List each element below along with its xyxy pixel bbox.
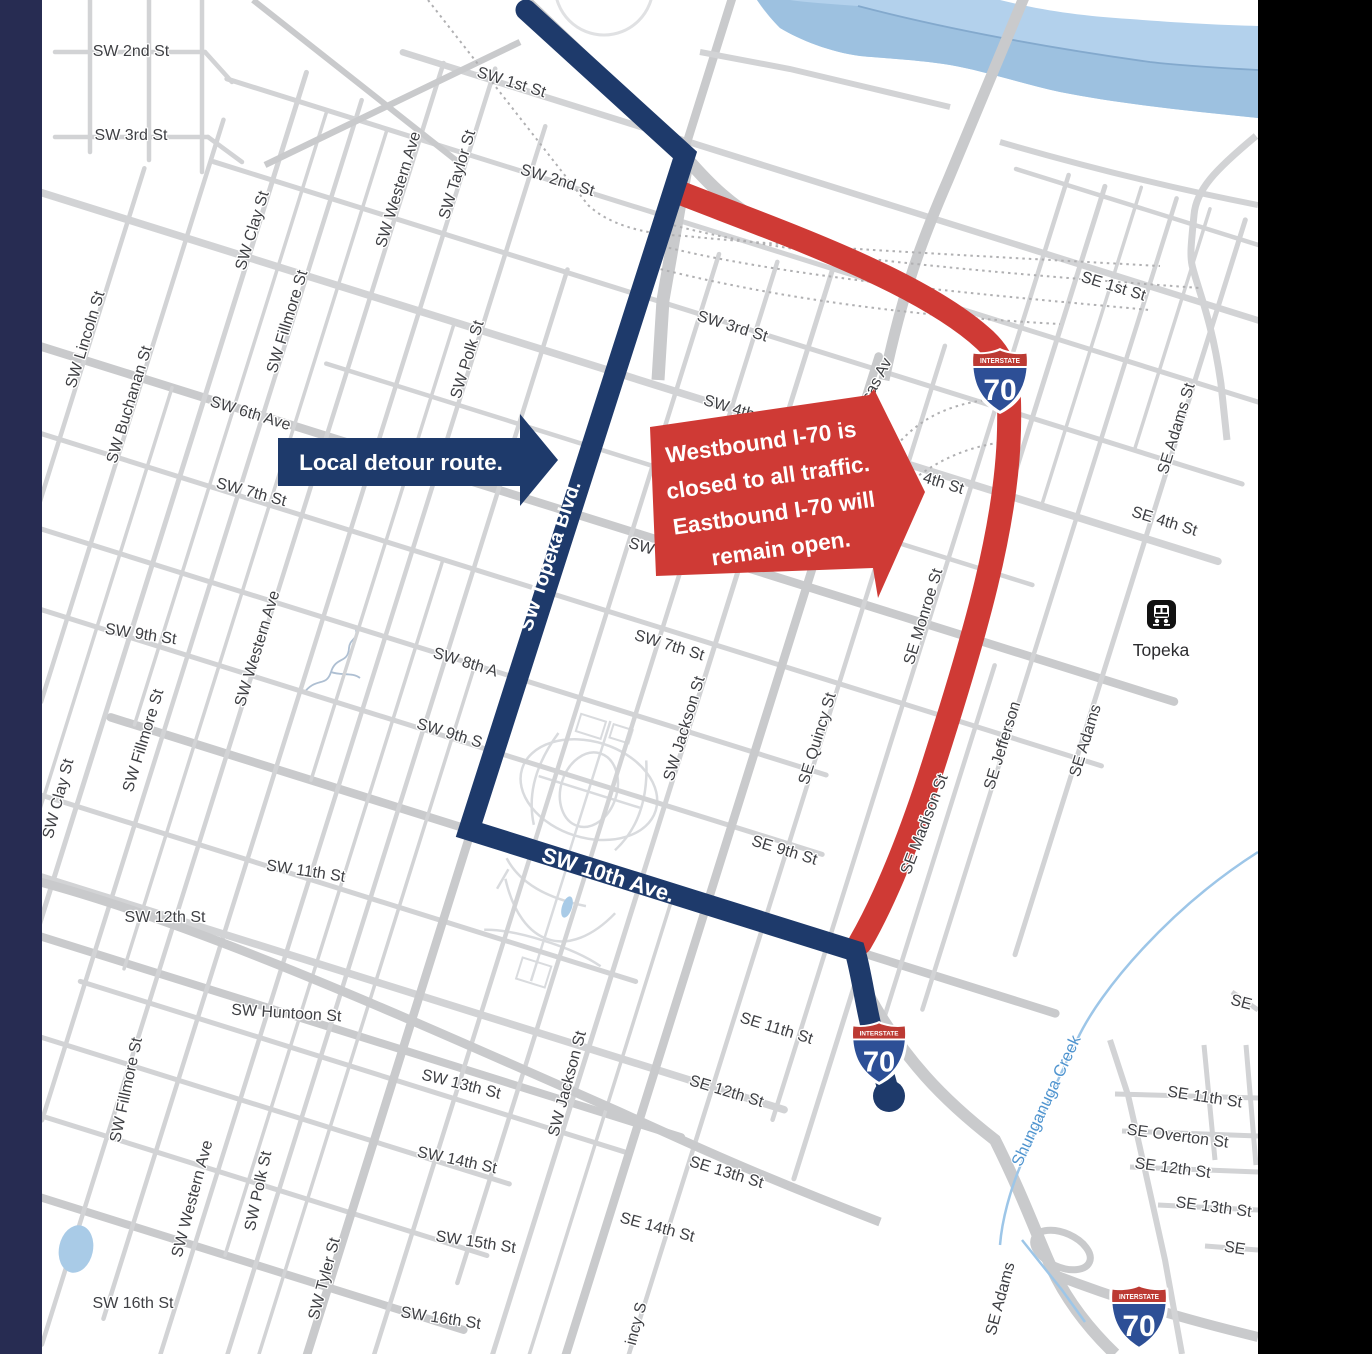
svg-text:SW 12th St: SW 12th St [125,909,206,926]
svg-text:Local detour route.: Local detour route. [299,450,503,475]
svg-text:SE: SE [1223,1239,1247,1259]
svg-text:SW 3rd St: SW 3rd St [95,127,168,144]
svg-text:SW 16th St: SW 16th St [93,1295,174,1312]
svg-text:Topeka: Topeka [1133,640,1190,660]
svg-text:SW 2nd St: SW 2nd St [93,43,170,60]
